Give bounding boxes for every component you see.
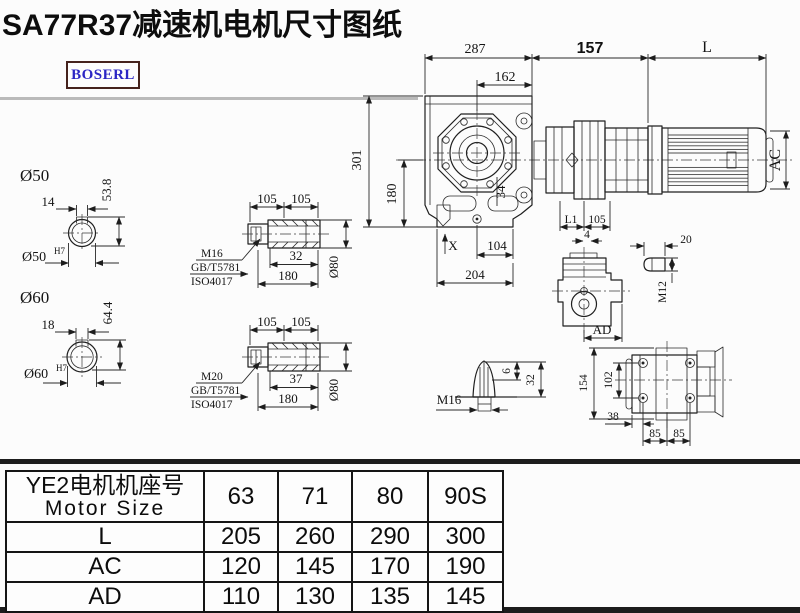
dim-105-label: 105 bbox=[588, 214, 606, 226]
bushing2-105b-label: 105 bbox=[291, 314, 311, 329]
bore-50-tol-label: Ø50 bbox=[22, 250, 46, 265]
bore-50-tol-sup: H7 bbox=[54, 246, 65, 256]
row-AD-value-1: 130 bbox=[278, 582, 352, 612]
thread-M12-label: M12 bbox=[657, 281, 669, 303]
bore-60-tol-label: Ø60 bbox=[24, 367, 48, 382]
row-AC-value-3: 190 bbox=[428, 552, 503, 582]
row-L-value-1: 260 bbox=[278, 522, 352, 552]
dim-162-label: 162 bbox=[495, 70, 516, 85]
dim-AC-label: AC bbox=[767, 149, 784, 171]
bushing1-thread-label: M16 bbox=[201, 248, 223, 260]
bore-50-title: Ø50 bbox=[20, 166, 49, 185]
row-L-value-3: 300 bbox=[428, 522, 503, 552]
main-assembly-view: 287 162 157 L AC 301 180 34 X 104 2 bbox=[350, 39, 794, 287]
dim-53.8-label: 53.8 bbox=[99, 179, 114, 202]
row-L-value-0: 205 bbox=[204, 522, 278, 552]
size-90s-cell: 90S bbox=[428, 471, 503, 522]
row-AD-value-3: 145 bbox=[428, 582, 503, 612]
gearbox-side-view: AD bbox=[552, 247, 630, 342]
bushing2-std1-label: GB/T5781 bbox=[191, 385, 240, 397]
dim-38-label: 38 bbox=[607, 411, 619, 423]
table-header-row: YE2电机机座号 Motor Size 63 71 80 90S bbox=[6, 471, 503, 522]
oil-drain-plug bbox=[437, 205, 450, 226]
row-AD-label: AD bbox=[6, 582, 204, 612]
size-63-cell: 63 bbox=[204, 471, 278, 522]
table-row-AD: AD 110 130 135 145 bbox=[6, 582, 503, 612]
table-row-AC: AC 120 145 170 190 bbox=[6, 552, 503, 582]
dim-102-label: 102 bbox=[603, 371, 615, 389]
bushing1-105a-label: 105 bbox=[257, 191, 277, 206]
dim-18-label: 18 bbox=[42, 317, 55, 332]
bushing2-std2-label: ISO4017 bbox=[191, 399, 233, 411]
dim-180-label: 180 bbox=[385, 184, 400, 205]
drawing-sheet: SA77R37减速机电机尺寸图纸 BOSERL bbox=[0, 0, 800, 613]
row-AD-value-0: 110 bbox=[204, 582, 278, 612]
shaft-bore-60-detail: Ø60 18 64.4 Ø60 H7 bbox=[20, 288, 126, 387]
breather-thread-label: M16 bbox=[437, 392, 462, 407]
dim-154-label: 154 bbox=[578, 374, 590, 392]
bushing1-32-label: 32 bbox=[290, 248, 303, 263]
breather-32-label: 32 bbox=[525, 374, 537, 386]
size-80-cell: 80 bbox=[352, 471, 428, 522]
bushing2-37-label: 37 bbox=[290, 371, 304, 386]
dim-204-label: 204 bbox=[465, 267, 485, 282]
bushing2-180-label: 180 bbox=[278, 391, 298, 406]
bushing2-dia-label: Ø80 bbox=[326, 379, 341, 401]
bushing-detail-m20: 105 105 37 180 Ø80 M20 GB/T5781 ISO4017 bbox=[190, 314, 352, 411]
row-L-label: L bbox=[6, 522, 204, 552]
shaft-bore-50-detail: Ø50 14 53.8 Ø50 H7 bbox=[20, 166, 125, 267]
breather-6-label: 6 bbox=[501, 368, 513, 374]
motor-size-header-en: Motor Size bbox=[7, 498, 203, 521]
dim-34-label: 34 bbox=[493, 185, 508, 199]
dim-L1-label: L1 bbox=[565, 214, 578, 226]
dim-85a-label: 85 bbox=[649, 428, 661, 440]
row-AC-value-1: 145 bbox=[278, 552, 352, 582]
bore-60-title: Ø60 bbox=[20, 288, 49, 307]
bushing-detail-m16: 105 105 32 180 Ø80 M16 GB/T5781 ISO4017 bbox=[190, 191, 352, 288]
dim-4-label: 4 bbox=[584, 229, 590, 241]
row-AC-label: AC bbox=[6, 552, 204, 582]
bushing1-180-label: 180 bbox=[278, 268, 298, 283]
motor-size-table: YE2电机机座号 Motor Size 63 71 80 90S L 205 2… bbox=[5, 470, 504, 613]
bushing2-105a-label: 105 bbox=[257, 314, 277, 329]
row-AC-value-0: 120 bbox=[204, 552, 278, 582]
dim-157-label: 157 bbox=[577, 40, 604, 57]
bushing1-105b-label: 105 bbox=[291, 191, 311, 206]
dim-85b-label: 85 bbox=[673, 428, 685, 440]
size-71-cell: 71 bbox=[278, 471, 352, 522]
table-row-L: L 205 260 290 300 bbox=[6, 522, 503, 552]
dim-301-label: 301 bbox=[350, 150, 365, 171]
dim-287-label: 287 bbox=[465, 42, 486, 57]
bushing1-std1-label: GB/T5781 bbox=[191, 262, 240, 274]
dim-AD-label: AD bbox=[593, 322, 612, 337]
dim-104-label: 104 bbox=[487, 238, 507, 253]
breather-plug-detail: M16 6 32 bbox=[436, 361, 546, 411]
dim-14-label: 14 bbox=[42, 194, 56, 209]
bushing1-dia-label: Ø80 bbox=[326, 256, 341, 278]
motor-size-header-cell: YE2电机机座号 Motor Size bbox=[6, 471, 204, 522]
bushing2-thread-label: M20 bbox=[201, 371, 223, 383]
dim-64.4-label: 64.4 bbox=[100, 301, 115, 324]
motor-size-header-cn: YE2电机机座号 bbox=[7, 473, 203, 498]
x-marker-label: X bbox=[448, 238, 458, 253]
bore-60-tol-sup: H7 bbox=[56, 363, 67, 373]
row-AC-value-2: 170 bbox=[352, 552, 428, 582]
dim-20-label: 20 bbox=[680, 234, 692, 246]
shaft-end-detail: 20 M12 bbox=[630, 234, 692, 303]
gearbox-rear-view: 154 102 38 85 85 bbox=[578, 341, 732, 446]
row-AD-value-2: 135 bbox=[352, 582, 428, 612]
bushing1-std2-label: ISO4017 bbox=[191, 276, 233, 288]
row-L-value-2: 290 bbox=[352, 522, 428, 552]
dim-L-label: L bbox=[702, 39, 712, 56]
